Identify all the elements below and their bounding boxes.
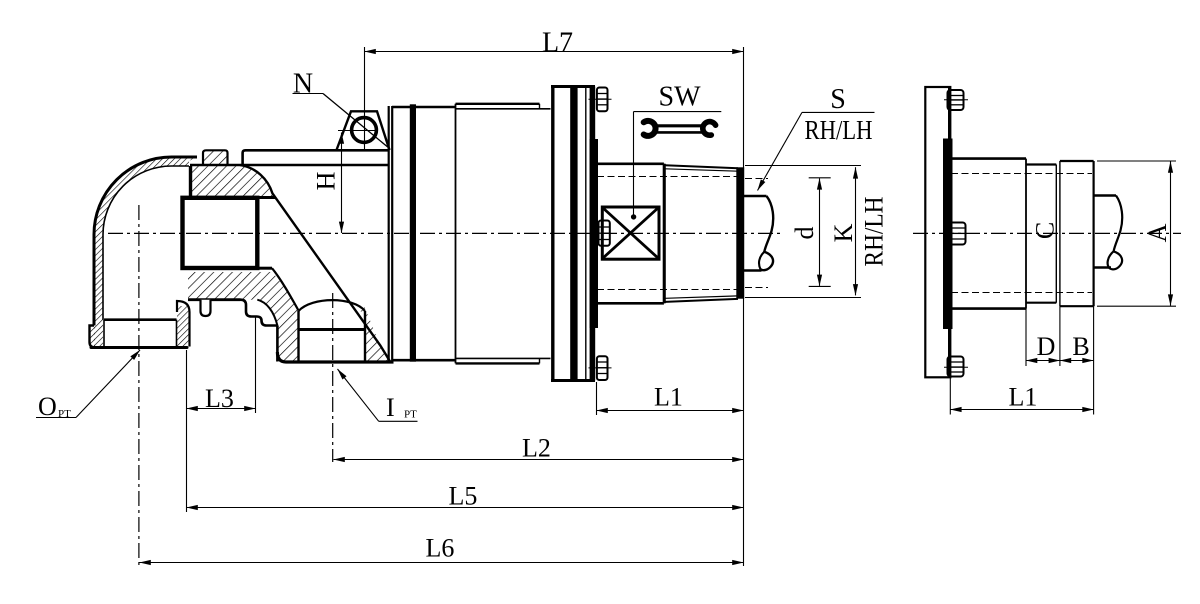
svg-text:L1: L1 — [654, 383, 683, 412]
svg-text:PT: PT — [404, 409, 417, 421]
svg-text:L1: L1 — [1009, 383, 1038, 412]
svg-text:A: A — [1143, 223, 1172, 242]
svg-text:L6: L6 — [426, 534, 455, 563]
svg-text:L3: L3 — [205, 384, 234, 413]
svg-text:D: D — [1037, 332, 1056, 361]
svg-text:L7: L7 — [542, 28, 573, 59]
svg-text:B: B — [1072, 332, 1089, 361]
svg-text:I: I — [386, 393, 395, 422]
svg-text:N: N — [293, 69, 313, 100]
svg-text:SW: SW — [659, 82, 702, 113]
svg-text:C: C — [1031, 222, 1060, 239]
svg-text:K: K — [829, 223, 858, 242]
svg-text:PT: PT — [58, 408, 71, 420]
svg-text:S: S — [830, 84, 846, 115]
svg-text:RH/LH: RH/LH — [805, 115, 873, 145]
svg-text:d: d — [790, 227, 819, 240]
svg-text:O: O — [38, 392, 57, 421]
svg-text:L5: L5 — [449, 482, 478, 511]
svg-text:H: H — [312, 171, 341, 190]
svg-text:L2: L2 — [522, 434, 551, 463]
svg-text:RH/LH: RH/LH — [860, 196, 889, 266]
